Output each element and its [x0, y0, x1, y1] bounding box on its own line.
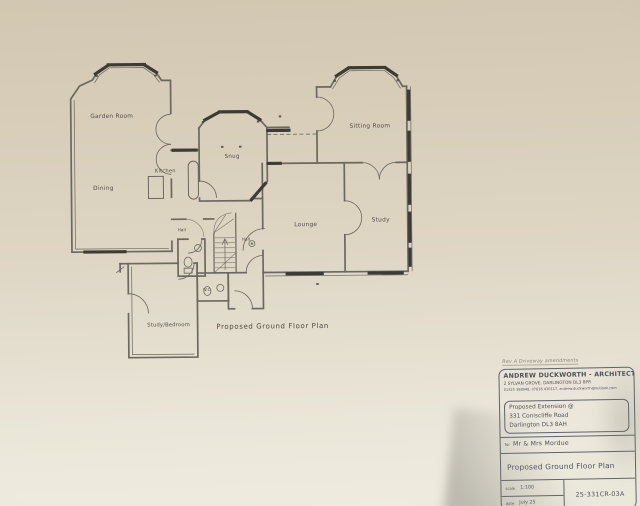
dimension-marks [95, 72, 400, 287]
basin-symbol [217, 284, 224, 291]
room-labels: Garden Room Dining Kitchen Snug Sitting … [90, 111, 392, 329]
stairs [214, 213, 237, 273]
room-label-wc: W.C. [203, 287, 212, 292]
revision-note: Rev A Driveway amendments [502, 359, 578, 366]
room-label-lounge: Lounge [294, 222, 317, 228]
toilet-symbol [184, 257, 192, 267]
basin-symbol [194, 245, 201, 252]
photographed-floor-plan-sheet: Garden Room Dining Kitchen Snug Sitting … [0, 0, 640, 506]
room-label-garden-room: Garden Room [90, 114, 133, 120]
window-bars [83, 62, 410, 275]
plan-caption: Proposed Ground Floor Plan [216, 322, 329, 331]
room-label-kitchen: Kitchen [155, 168, 176, 174]
room-label-study: Study [372, 217, 391, 223]
room-label-snug: Snug [225, 154, 240, 160]
room-label-hall-west: Hall [178, 227, 186, 232]
room-label-dining: Dining [93, 186, 114, 192]
wall-inner-lines [74, 65, 413, 355]
room-label-study-bedroom: Study/Bedroom [147, 322, 190, 328]
room-label-sitting-room: Sitting Room [349, 123, 390, 129]
room-label-hall-east: Hall [242, 237, 250, 242]
walls [70, 62, 409, 358]
